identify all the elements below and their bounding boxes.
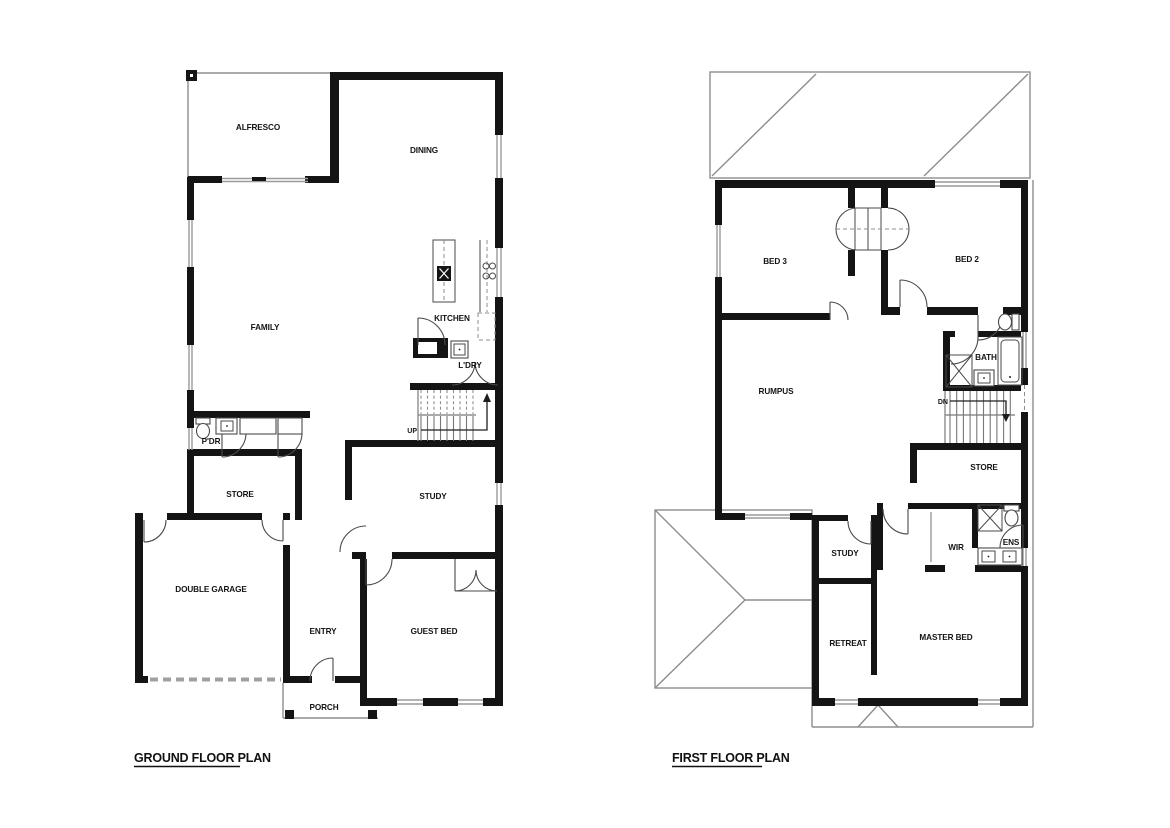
powder-vanity bbox=[216, 418, 237, 434]
porch-post bbox=[368, 710, 377, 719]
rumpus-window bbox=[745, 513, 790, 520]
ground-floor-title: GROUND FLOOR PLAN bbox=[134, 751, 271, 767]
room-label-store: STORE bbox=[226, 490, 254, 499]
dn-arrow bbox=[950, 401, 1006, 416]
first-floor-stairs: DN bbox=[938, 391, 1015, 443]
room-label-bed2: BED 2 bbox=[955, 255, 979, 264]
bed2-window bbox=[935, 180, 1000, 188]
bed2-door bbox=[900, 280, 927, 307]
room-label-bed3: BED 3 bbox=[763, 257, 787, 266]
kitchen-window bbox=[495, 248, 503, 297]
first-floor-plan: DN BED 3 BED 2 RUMPUS BATH STORE STUDY W… bbox=[655, 72, 1033, 767]
room-label-store-first: STORE bbox=[970, 463, 998, 472]
porch-post bbox=[285, 710, 294, 719]
bed3-window bbox=[715, 225, 722, 277]
room-label-dn: DN bbox=[938, 399, 948, 406]
floor-plan-drawing: UP ALFRESCO DINING FAMILY KITCHEN L'DRY bbox=[0, 0, 1170, 828]
room-label-powder: P'DR bbox=[202, 437, 221, 446]
ground-floor-title-text: GROUND FLOOR PLAN bbox=[134, 751, 271, 765]
garage-internal-door bbox=[144, 520, 166, 542]
room-label-dining: DINING bbox=[410, 146, 438, 155]
laundry-sink bbox=[451, 341, 468, 358]
wir-door bbox=[883, 509, 908, 534]
bath-tub bbox=[998, 337, 1022, 385]
room-label-laundry: L'DRY bbox=[458, 361, 482, 370]
room-label-study-first: STUDY bbox=[831, 549, 859, 558]
dining-window bbox=[495, 135, 503, 178]
ens-toilet bbox=[1004, 505, 1019, 526]
robe-doors bbox=[836, 208, 909, 250]
study-window bbox=[495, 483, 503, 505]
room-label-rumpus: RUMPUS bbox=[759, 387, 795, 396]
room-label-ens: ENS bbox=[1003, 538, 1020, 547]
room-label-up: UP bbox=[407, 428, 417, 435]
room-label-entry: ENTRY bbox=[310, 627, 338, 636]
first-floor-title: FIRST FLOOR PLAN bbox=[672, 751, 790, 767]
stair-window bbox=[1021, 385, 1028, 412]
bath-vanity bbox=[974, 370, 994, 386]
room-label-double-garage: DOUBLE GARAGE bbox=[175, 585, 247, 594]
porch-gable bbox=[858, 705, 898, 727]
room-label-guest-bed: GUEST BED bbox=[411, 627, 458, 636]
master-window bbox=[978, 700, 1000, 704]
retreat-window bbox=[835, 700, 858, 704]
room-label-kitchen: KITCHEN bbox=[434, 314, 470, 323]
ground-floor-stairs: UP bbox=[407, 390, 491, 441]
first-floor-walls bbox=[715, 180, 1028, 706]
pantry bbox=[478, 313, 495, 340]
room-label-alfresco: ALFRESCO bbox=[236, 123, 281, 132]
room-label-wir: WIR bbox=[948, 543, 964, 552]
alfresco-sliding-door bbox=[222, 177, 308, 182]
hall-study-door bbox=[340, 526, 366, 552]
kitchen-island bbox=[433, 240, 455, 302]
ground-floor-walls bbox=[135, 72, 503, 706]
first-floor-title-text: FIRST FLOOR PLAN bbox=[672, 751, 790, 765]
room-label-family: FAMILY bbox=[251, 323, 280, 332]
garage-hall-door bbox=[262, 520, 283, 541]
guest-robe-doors bbox=[455, 559, 497, 591]
hall-cupboards bbox=[240, 418, 302, 434]
wc-toilet bbox=[999, 314, 1020, 330]
guest-bed-door bbox=[366, 559, 392, 585]
room-label-porch: PORCH bbox=[309, 703, 338, 712]
upper-roof bbox=[710, 72, 1030, 178]
bed3-door bbox=[830, 302, 848, 320]
ens-vanity bbox=[978, 548, 1022, 565]
room-label-bath: BATH bbox=[975, 353, 997, 362]
bath-door bbox=[951, 337, 978, 364]
floor-plan-sheet: UP ALFRESCO DINING FAMILY KITCHEN L'DRY bbox=[0, 0, 1170, 828]
study-door bbox=[848, 521, 871, 544]
room-label-retreat: RETREAT bbox=[829, 639, 866, 648]
powder-toilet bbox=[196, 418, 210, 439]
entry-door bbox=[310, 658, 333, 681]
room-label-master-bed: MASTER BED bbox=[919, 633, 972, 642]
kitchen-counter bbox=[478, 240, 496, 340]
ground-floor-plan: UP ALFRESCO DINING FAMILY KITCHEN L'DRY bbox=[134, 70, 503, 767]
room-label-study: STUDY bbox=[419, 492, 447, 501]
